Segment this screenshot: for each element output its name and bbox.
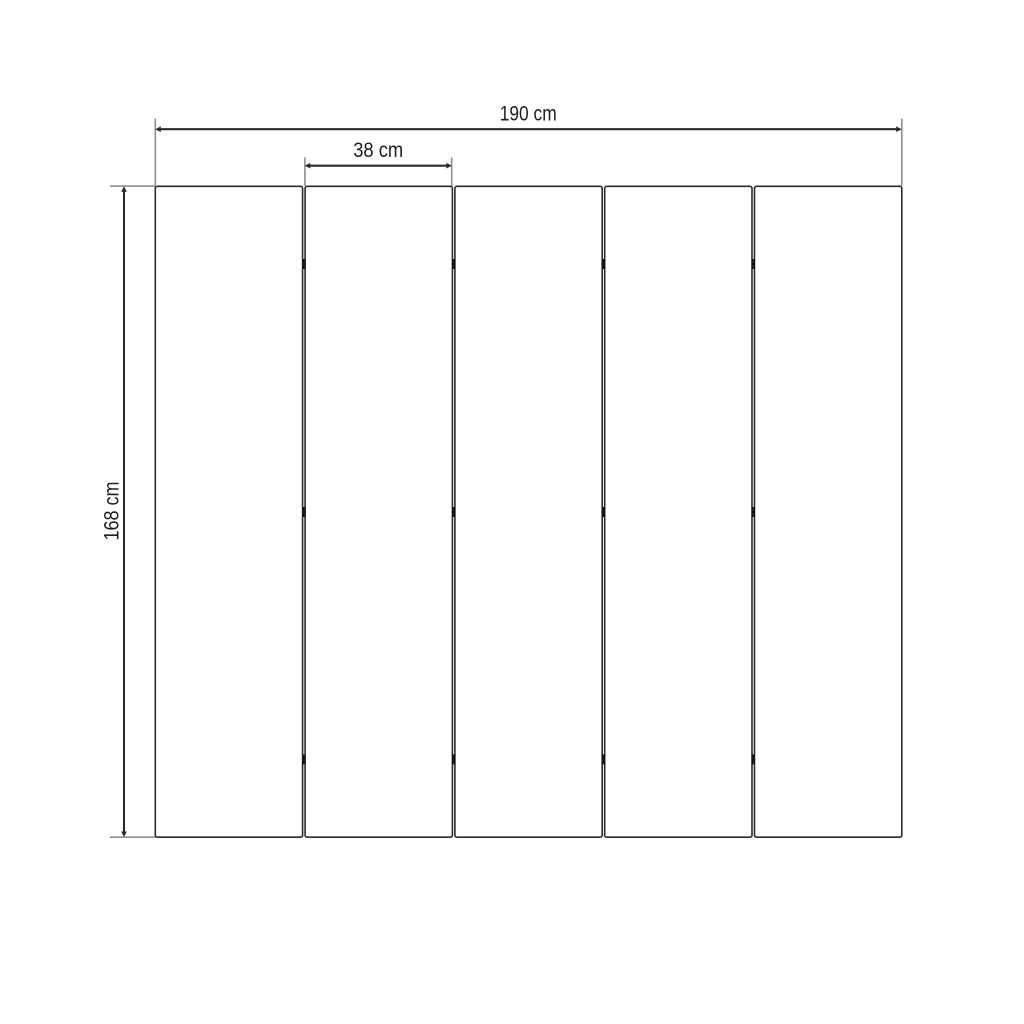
svg-text:38 cm: 38 cm <box>353 138 403 162</box>
svg-text:168 cm: 168 cm <box>100 482 124 541</box>
svg-text:190 cm: 190 cm <box>500 102 557 126</box>
